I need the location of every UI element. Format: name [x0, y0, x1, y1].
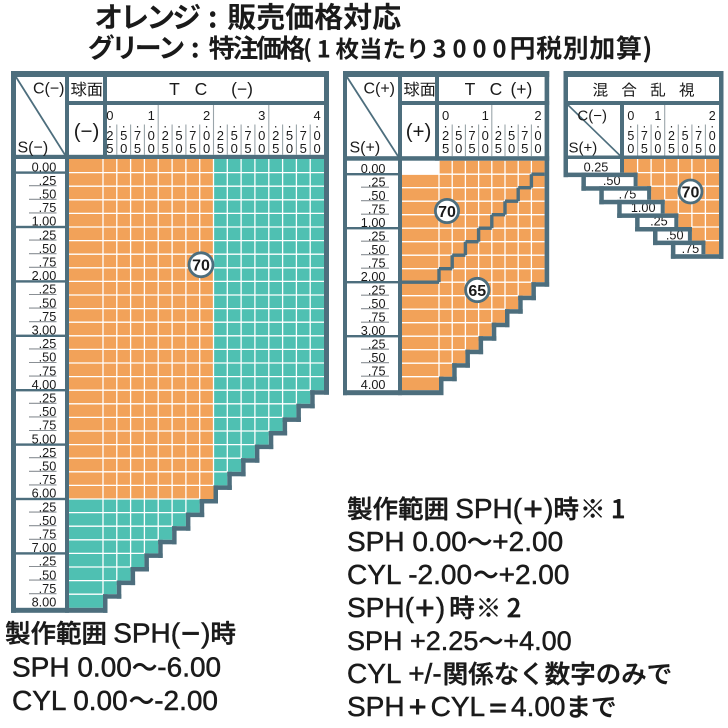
svg-text:0: 0: [313, 141, 320, 156]
svg-text:5: 5: [162, 141, 169, 156]
svg-text:.50: .50: [368, 297, 386, 311]
svg-text:3.00: 3.00: [361, 324, 386, 338]
svg-text:2.00: 2.00: [32, 269, 57, 283]
svg-text:.75: .75: [39, 528, 57, 542]
svg-text:0: 0: [482, 141, 489, 156]
svg-text:4.00: 4.00: [511, 691, 566, 722]
svg-text:.75: .75: [39, 473, 57, 487]
svg-text:65: 65: [468, 283, 486, 300]
svg-text:5: 5: [641, 142, 648, 156]
svg-text:7.00: 7.00: [32, 541, 57, 555]
svg-text:5: 5: [300, 141, 307, 156]
svg-text:0: 0: [709, 142, 716, 156]
svg-text:.50: .50: [368, 243, 386, 257]
svg-text:4.00: 4.00: [361, 378, 386, 392]
svg-text:0: 0: [120, 141, 127, 156]
svg-text:5: 5: [244, 141, 251, 156]
svg-text:SPH(: SPH(: [113, 618, 181, 649]
svg-text:CYL -2.00: CYL -2.00: [347, 559, 472, 590]
svg-text:0: 0: [508, 141, 515, 156]
svg-text:T: T: [169, 79, 180, 99]
svg-text:+2.00: +2.00: [492, 526, 563, 557]
svg-text:.50: .50: [39, 568, 57, 582]
svg-text:SPH(: SPH(: [347, 592, 415, 623]
svg-text:C(−): C(−): [577, 107, 607, 124]
svg-text:5: 5: [442, 141, 449, 156]
svg-text:.75: .75: [39, 310, 57, 324]
svg-text:SPH 0.00: SPH 0.00: [12, 652, 132, 683]
svg-text:S(+): S(+): [350, 139, 381, 156]
svg-text:CYL 0.00: CYL 0.00: [12, 685, 128, 716]
svg-text:0: 0: [258, 141, 265, 156]
svg-text:5: 5: [189, 141, 196, 156]
svg-text:C: C: [490, 79, 503, 99]
svg-text:.50: .50: [39, 188, 57, 202]
svg-text:SPH +2.25: SPH +2.25: [347, 626, 478, 656]
svg-text:.50: .50: [39, 514, 57, 528]
svg-text:.50: .50: [368, 189, 386, 203]
svg-text:T: T: [465, 79, 476, 99]
svg-text:+2.00: +2.00: [499, 559, 570, 590]
svg-text:3.00: 3.00: [32, 324, 57, 338]
svg-text:.25: .25: [39, 283, 57, 297]
svg-text:.25: .25: [39, 446, 57, 460]
svg-text:0: 0: [455, 141, 462, 156]
svg-text:.25: .25: [39, 228, 57, 242]
svg-text:5: 5: [134, 141, 141, 156]
svg-text:0.25: 0.25: [584, 160, 609, 174]
svg-text:(+): (+): [510, 79, 532, 99]
svg-text:SPH(: SPH(: [455, 493, 523, 524]
svg-text:.75: .75: [368, 311, 386, 325]
svg-text:.50: .50: [39, 405, 57, 419]
svg-text:1.00: 1.00: [361, 216, 386, 230]
svg-text:0: 0: [534, 141, 541, 156]
svg-text:.75: .75: [368, 203, 386, 217]
svg-text:5: 5: [668, 142, 675, 156]
svg-text:2.00: 2.00: [361, 270, 386, 284]
svg-text:+4.00: +4.00: [503, 626, 571, 656]
svg-text:0: 0: [231, 141, 238, 156]
svg-text:5: 5: [106, 141, 113, 156]
svg-text:.25: .25: [39, 392, 57, 406]
svg-text:.25: .25: [368, 230, 386, 244]
svg-text:0.00: 0.00: [361, 162, 386, 176]
svg-text:0: 0: [682, 142, 689, 156]
svg-text:.25: .25: [39, 555, 57, 569]
svg-text:6.00: 6.00: [32, 487, 57, 501]
svg-text:(−): (−): [74, 120, 100, 143]
svg-text:-2.00: -2.00: [154, 685, 218, 716]
svg-text:.75: .75: [39, 201, 57, 215]
svg-text:.50: .50: [39, 351, 57, 365]
svg-text:4.00: 4.00: [32, 378, 57, 392]
svg-text:0: 0: [175, 141, 182, 156]
svg-text:C(−): C(−): [33, 81, 65, 98]
svg-text:): ): [436, 592, 445, 623]
svg-text:5.00: 5.00: [32, 432, 57, 446]
svg-text:0.00: 0.00: [32, 160, 57, 174]
svg-text:0: 0: [286, 141, 293, 156]
svg-text:.75: .75: [368, 365, 386, 379]
svg-text:5: 5: [217, 141, 224, 156]
svg-text:.75: .75: [39, 419, 57, 433]
svg-text:5: 5: [695, 142, 702, 156]
svg-text:): ): [544, 493, 553, 524]
svg-text:C(+): C(+): [363, 81, 395, 98]
svg-text:(−): (−): [231, 79, 253, 99]
svg-text:5: 5: [495, 141, 502, 156]
svg-text:.25: .25: [39, 174, 57, 188]
svg-text:.25: .25: [368, 338, 386, 352]
svg-text:0: 0: [627, 142, 634, 156]
svg-text:.50: .50: [39, 296, 57, 310]
svg-text:-6.00: -6.00: [157, 652, 221, 683]
svg-text:5: 5: [468, 141, 475, 156]
svg-text:SPH 0.00: SPH 0.00: [347, 526, 467, 557]
svg-text:.50: .50: [39, 242, 57, 256]
svg-text:70: 70: [682, 184, 700, 201]
svg-text:8.00: 8.00: [32, 596, 57, 610]
svg-text:.25: .25: [39, 500, 57, 514]
svg-text:5: 5: [272, 141, 279, 156]
svg-text:.75: .75: [39, 256, 57, 270]
svg-text:S(+): S(+): [569, 139, 598, 156]
svg-text:0: 0: [203, 141, 210, 156]
svg-text:.25: .25: [368, 176, 386, 190]
svg-text:C: C: [195, 79, 208, 99]
svg-text:0: 0: [654, 142, 661, 156]
svg-text:.50: .50: [39, 460, 57, 474]
svg-text:CYL +/-: CYL +/-: [347, 658, 442, 689]
svg-text:SPH: SPH: [347, 691, 405, 722]
svg-text:): ): [201, 618, 210, 649]
svg-text:5: 5: [521, 141, 528, 156]
svg-text:.25: .25: [39, 337, 57, 351]
svg-text:.25: .25: [368, 284, 386, 298]
svg-text:(+): (+): [406, 120, 432, 143]
svg-text:70: 70: [192, 258, 210, 275]
svg-text:CYL: CYL: [431, 691, 485, 722]
svg-text:.75: .75: [39, 364, 57, 378]
svg-text:S(−): S(−): [18, 139, 49, 156]
svg-text:.50: .50: [368, 351, 386, 365]
svg-text:.75: .75: [39, 582, 57, 596]
svg-text:70: 70: [438, 204, 456, 221]
svg-text:.75: .75: [368, 257, 386, 271]
svg-text:0: 0: [148, 141, 155, 156]
svg-text:1.00: 1.00: [32, 215, 57, 229]
